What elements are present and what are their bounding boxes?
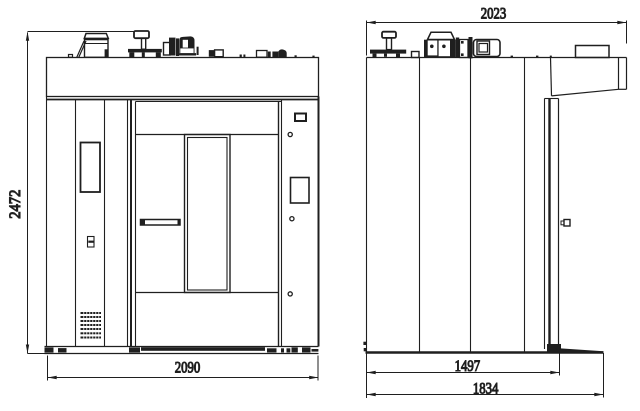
svg-text:2023: 2023 [481,5,507,22]
svg-text:2472: 2472 [7,190,24,219]
svg-text:1497: 1497 [455,358,481,375]
svg-text:2090: 2090 [175,360,201,377]
svg-text:1834: 1834 [473,380,499,397]
